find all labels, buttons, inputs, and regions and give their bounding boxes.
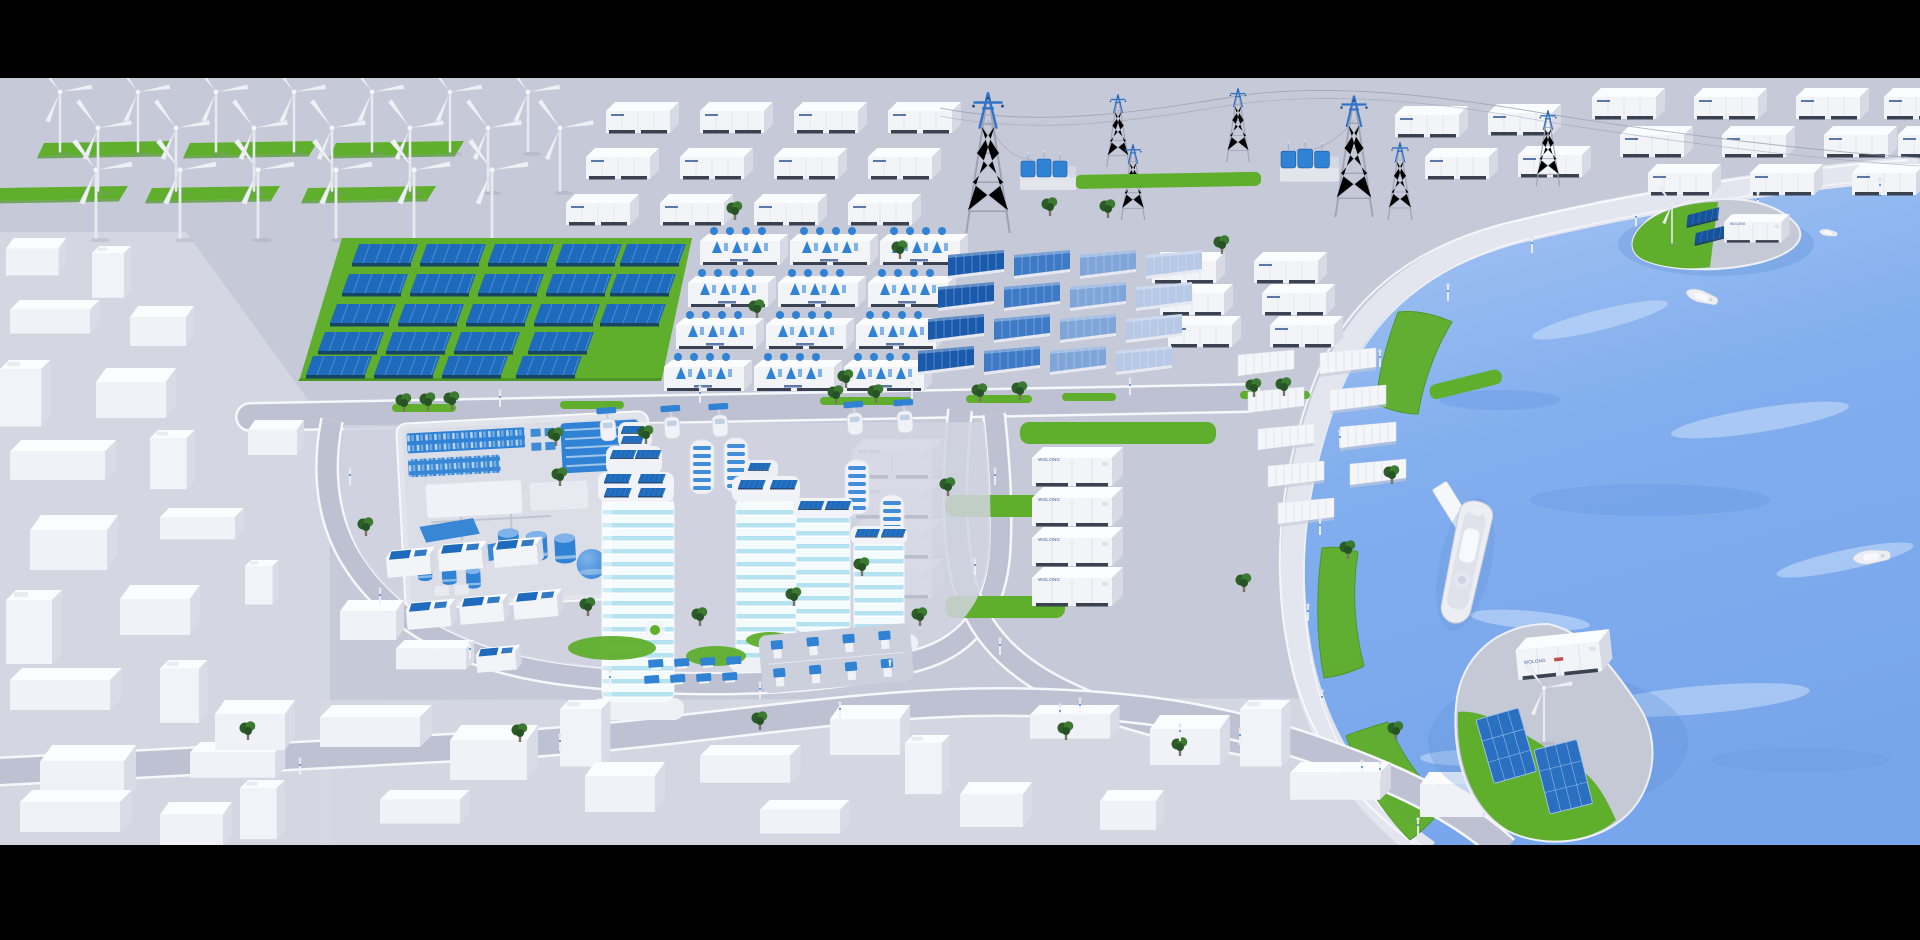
city-building xyxy=(960,782,1032,827)
solar-panel xyxy=(454,332,520,355)
city-building xyxy=(160,660,208,723)
solar-house xyxy=(405,599,457,630)
solar-panel xyxy=(546,274,612,297)
city-building xyxy=(160,508,244,540)
battery-container xyxy=(868,148,941,180)
city-building xyxy=(830,705,910,755)
city-building xyxy=(380,790,470,824)
city-building xyxy=(160,802,232,847)
city-building xyxy=(700,745,801,783)
solar-panel xyxy=(488,244,554,267)
battery-container xyxy=(586,148,659,180)
container-label: WOLONG xyxy=(1038,577,1060,582)
city-building xyxy=(1290,762,1391,800)
battery-container xyxy=(1724,214,1790,242)
battery-container xyxy=(660,194,733,226)
city-building xyxy=(10,668,122,710)
city-building xyxy=(585,762,665,812)
letterbox-top xyxy=(0,0,1920,78)
city-building xyxy=(240,780,285,839)
battery-container xyxy=(1796,88,1869,120)
city-building xyxy=(1030,705,1120,739)
solar-panel xyxy=(318,332,384,355)
solar-panel xyxy=(306,356,372,379)
solar-panel xyxy=(528,332,594,355)
city-building xyxy=(1100,790,1164,830)
city-building xyxy=(10,440,116,480)
battery-container xyxy=(794,102,867,134)
rooftop-solar-panel xyxy=(604,474,632,483)
city-building xyxy=(6,590,62,664)
city-building xyxy=(450,725,538,780)
city-building xyxy=(120,585,200,635)
container-label: WOLONG xyxy=(1038,537,1060,542)
battery-container xyxy=(1824,126,1897,158)
solar-panel xyxy=(374,356,440,379)
rooftop-solar-panel xyxy=(770,480,798,489)
battery-container xyxy=(1270,316,1343,348)
solar-panel xyxy=(398,304,464,327)
city-building xyxy=(150,430,195,489)
storage-container xyxy=(1032,527,1123,567)
battery-container xyxy=(606,102,679,134)
solar-house xyxy=(437,541,489,572)
rooftop-solar-panel xyxy=(748,463,771,471)
process-hall xyxy=(425,480,523,519)
solar-panel xyxy=(420,244,486,267)
city-building xyxy=(6,238,66,276)
solar-house xyxy=(475,645,522,673)
battery-container xyxy=(680,148,753,180)
solar-panel xyxy=(442,356,508,379)
container-label: WOLONG xyxy=(1038,457,1060,462)
rooftop-solar-panel xyxy=(825,501,851,510)
city-building xyxy=(1240,700,1290,767)
city-building xyxy=(92,246,131,298)
solar-panel xyxy=(410,274,476,297)
rooftop-solar-panel xyxy=(621,436,644,444)
battery-container xyxy=(774,148,847,180)
city-building xyxy=(30,515,118,570)
city-building xyxy=(10,300,100,334)
city-building xyxy=(245,560,279,604)
city-building xyxy=(96,368,176,418)
solar-panel xyxy=(352,244,418,267)
solar-house xyxy=(458,594,510,625)
battery-container xyxy=(1884,88,1920,120)
rooftop-solar-panel xyxy=(881,529,906,538)
solar-panel xyxy=(556,244,622,267)
battery-container xyxy=(1254,252,1327,284)
city-building xyxy=(20,790,132,832)
city-building xyxy=(760,800,850,834)
solar-panel xyxy=(610,274,676,297)
solar-house xyxy=(512,589,564,620)
letterbox-bottom xyxy=(0,845,1920,940)
solar-panel xyxy=(330,304,396,327)
storage-container xyxy=(1032,567,1123,607)
city-building xyxy=(560,700,610,767)
solar-panel xyxy=(386,332,452,355)
battery-container xyxy=(1852,164,1920,196)
solar-farm xyxy=(298,238,692,381)
city-building xyxy=(320,705,432,747)
battery-container xyxy=(848,194,921,226)
city-building xyxy=(905,735,950,794)
storage-container xyxy=(1032,447,1123,487)
city-building xyxy=(130,306,194,346)
rooftop-solar-panel xyxy=(638,488,666,497)
battery-container xyxy=(1262,284,1335,316)
letterboxed-render: WOLONG WOLONG WOLONG WOLONG WOLONG WOLON… xyxy=(0,0,1920,940)
city-building xyxy=(1150,715,1230,765)
city-building xyxy=(340,600,404,640)
yard-lawn xyxy=(1020,422,1216,444)
solar-panel xyxy=(620,244,686,267)
solar-panel xyxy=(478,274,544,297)
battery-container xyxy=(1648,164,1721,196)
battery-container xyxy=(700,102,773,134)
solar-panel xyxy=(342,274,408,297)
city-building xyxy=(248,420,304,455)
battery-container xyxy=(1592,88,1665,120)
solar-panel xyxy=(534,304,600,327)
solar-house xyxy=(492,537,544,568)
battery-container xyxy=(754,194,827,226)
storage-tank xyxy=(554,533,576,564)
rooftop-solar-panel xyxy=(798,501,824,510)
energy-city-render: WOLONG WOLONG WOLONG WOLONG WOLONG WOLON… xyxy=(0,0,1920,940)
container-label: WOLONG xyxy=(1038,497,1060,502)
rooftop-solar-panel xyxy=(638,474,666,483)
battery-container xyxy=(1722,126,1795,158)
rooftop-solar-panel xyxy=(738,480,766,489)
rooftop-solar-panel xyxy=(604,488,632,497)
battery-container xyxy=(1750,164,1823,196)
battery-container xyxy=(1395,106,1468,138)
rooftop-solar-panel xyxy=(855,529,880,538)
solar-house xyxy=(385,547,437,578)
solar-panel xyxy=(600,304,666,327)
city-building xyxy=(0,360,50,427)
battery-container xyxy=(1425,148,1498,180)
greenhouse xyxy=(690,440,714,494)
solar-panel xyxy=(466,304,532,327)
container-label: WOLONG xyxy=(1730,222,1746,226)
rooftop-solar-panel xyxy=(610,450,636,459)
solar-panel xyxy=(516,356,582,379)
storage-container xyxy=(1032,487,1123,527)
city-building xyxy=(396,640,474,669)
battery-container xyxy=(1694,88,1767,120)
battery-container xyxy=(566,194,639,226)
rooftop-solar-panel xyxy=(635,450,661,459)
